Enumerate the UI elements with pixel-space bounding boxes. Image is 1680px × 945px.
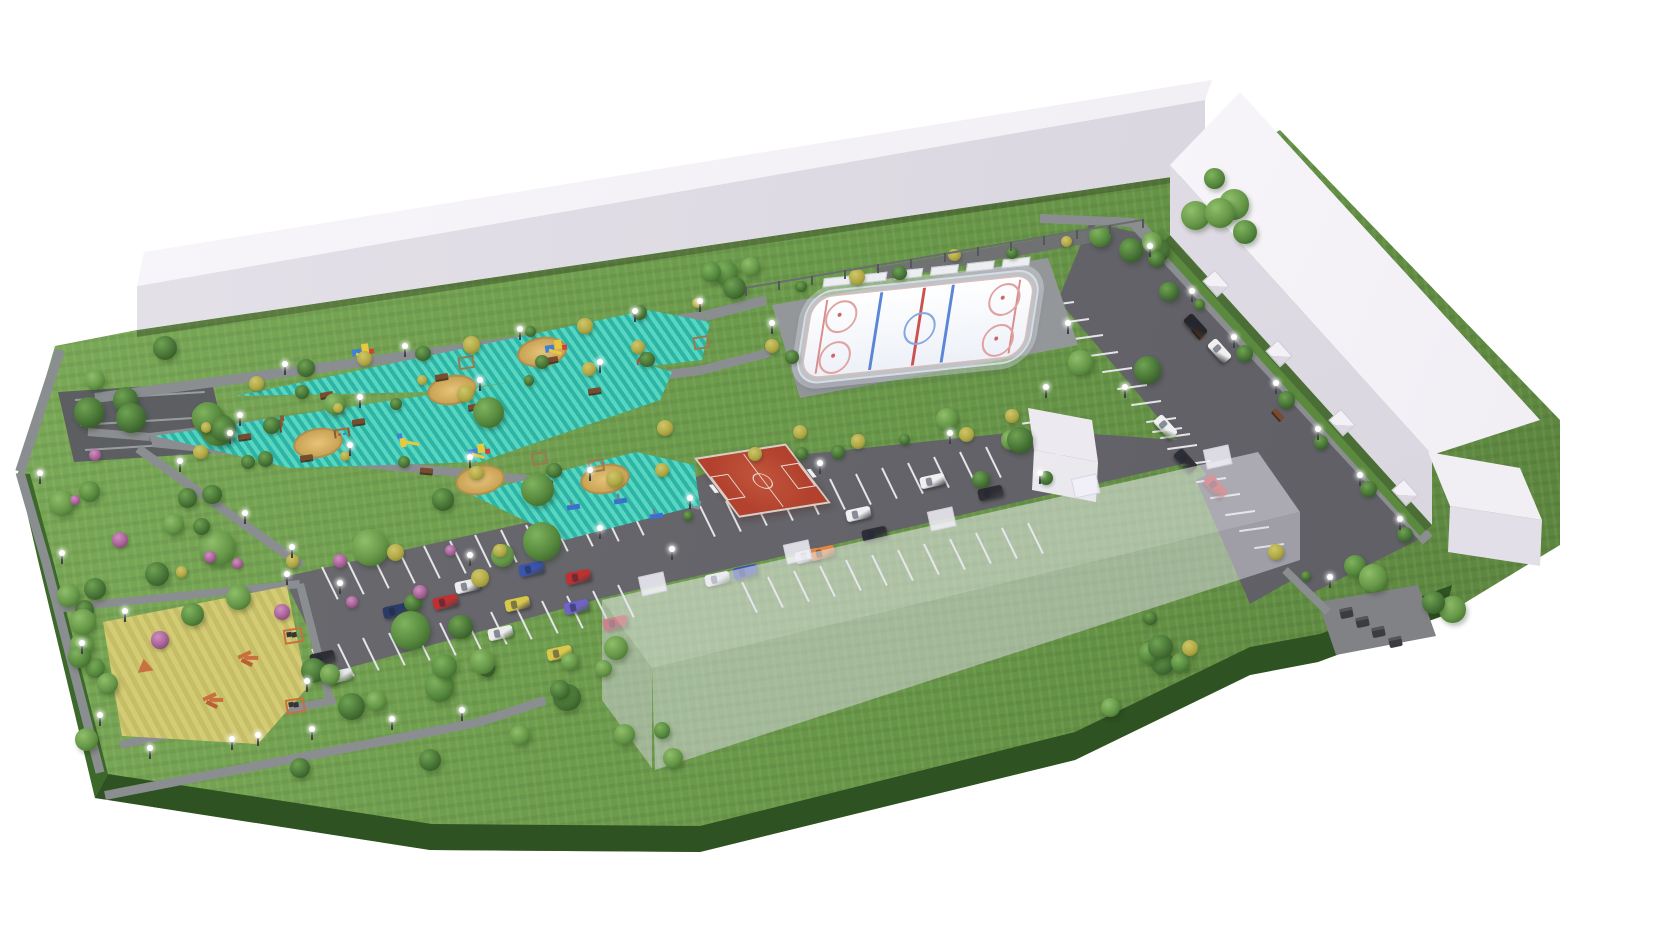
lamp-pole: [81, 644, 83, 654]
tree: [404, 594, 422, 612]
car-windshield: [524, 565, 532, 574]
rink-blue-line: [940, 285, 955, 363]
tree: [290, 758, 310, 778]
vegetation-layer: [0, 0, 1680, 945]
bush: [398, 456, 410, 468]
lamp-head: [632, 308, 638, 314]
park-bench: [238, 433, 252, 440]
equip-part: [457, 355, 475, 370]
tree: [75, 600, 94, 619]
tree: [201, 413, 234, 446]
tree: [70, 609, 96, 635]
parking-stall-line: [1272, 254, 1285, 278]
equip-part: [286, 632, 292, 638]
sandbox: [578, 460, 632, 498]
tree: [352, 529, 389, 566]
bush: [249, 376, 265, 392]
path-segment: [152, 438, 661, 497]
lamp-head: [289, 544, 295, 550]
path-segment: [88, 428, 151, 441]
parking-stall-line: [923, 544, 940, 575]
lamp-head: [1231, 334, 1237, 340]
bush: [258, 451, 274, 467]
planned-entrance-cube: [1071, 474, 1101, 499]
east-small-building-roof: [0, 0, 1680, 945]
lamp-pole: [99, 716, 101, 726]
planned-building-roof: [0, 0, 1680, 945]
tree: [57, 584, 80, 607]
parked-car: [1173, 448, 1199, 475]
park-bench: [300, 454, 314, 461]
bush: [849, 269, 865, 285]
tree: [1181, 201, 1210, 230]
equip-part: [136, 657, 154, 672]
parking-stall-line: [576, 514, 594, 547]
street-lamp: [357, 394, 363, 408]
parking-stall-line: [1251, 245, 1264, 269]
tree: [320, 664, 341, 685]
parking-stall-line: [1001, 528, 1018, 559]
bush: [1143, 611, 1157, 625]
park-bench: [1272, 408, 1284, 421]
fence-post: [1043, 236, 1045, 245]
car-windshield: [315, 654, 323, 663]
fence-post: [944, 253, 946, 262]
parking-stall-line: [741, 582, 758, 613]
lamp-pole: [1275, 384, 1277, 394]
equip-part: [472, 453, 485, 459]
lamp-head: [1065, 320, 1071, 326]
fence-post: [844, 270, 846, 279]
street-lamp: [237, 412, 243, 426]
tree: [113, 387, 139, 413]
lamp-head: [1147, 243, 1153, 249]
park-bench: [435, 373, 449, 380]
street-lamp: [769, 320, 775, 334]
street-lamp: [517, 326, 523, 340]
street-lamp: [687, 495, 693, 509]
tree: [553, 684, 581, 712]
parking-stall-line: [388, 633, 406, 666]
bush: [1148, 251, 1164, 267]
lamp-head: [1037, 470, 1043, 476]
parking-stall-line: [803, 484, 820, 515]
parking-stall-line: [1073, 334, 1103, 340]
play-structure-multi: [351, 340, 378, 362]
lamp-pole: [339, 584, 341, 594]
tree: [1001, 430, 1021, 450]
bush: [493, 544, 507, 558]
lamp-pole: [699, 302, 701, 312]
parking-stall-line: [767, 576, 784, 607]
tree: [192, 405, 214, 427]
sandbox: [291, 424, 345, 462]
parking-stall-line: [949, 538, 966, 569]
equip-part: [241, 658, 254, 667]
parking-stall-line: [897, 549, 914, 580]
equip-part: [477, 443, 485, 453]
court-key-left: [710, 474, 745, 500]
bush: [748, 447, 762, 461]
equip-part: [570, 500, 573, 506]
parked-car: [919, 473, 946, 490]
parking-stall-line: [1152, 427, 1182, 433]
tree: [1134, 356, 1162, 384]
lamp-pole: [61, 554, 63, 564]
parking-stall-line: [500, 529, 518, 562]
parking-stall-line: [725, 500, 742, 531]
car-windshield: [815, 549, 823, 558]
pad-marking: [80, 416, 210, 426]
equip-part: [399, 438, 406, 448]
planned-entrance-cube: [927, 506, 957, 531]
bush: [417, 375, 427, 385]
tree: [425, 672, 454, 701]
lamp-head: [304, 678, 310, 684]
street-lamp: [79, 640, 85, 654]
circulation-layer: [0, 0, 1680, 945]
tree: [713, 260, 738, 285]
tree: [550, 680, 570, 700]
lamp-pole: [469, 458, 471, 468]
lamp-head: [284, 571, 290, 577]
lamp-pole: [39, 474, 41, 484]
basketball-hoop: [709, 484, 719, 493]
car-windshield: [983, 489, 991, 498]
bush: [683, 511, 693, 521]
lamp-pole: [689, 499, 691, 509]
planned-building-side: [0, 0, 1680, 945]
parked-car: [382, 603, 409, 620]
wooden-deer-sculpture: [269, 415, 287, 435]
street-lamp: [147, 745, 153, 759]
car-windshield: [710, 575, 718, 584]
equip-part: [347, 428, 350, 436]
bush: [333, 403, 343, 413]
pad-marking: [75, 391, 205, 401]
bush: [415, 346, 431, 362]
rink-faceoff-dot: [837, 313, 842, 318]
street-lamp: [284, 571, 290, 585]
street-lamp: [1122, 384, 1128, 398]
equip-part: [545, 345, 555, 353]
parked-car: [565, 569, 592, 586]
court-key-right: [780, 463, 815, 489]
street-lamp: [337, 580, 343, 594]
flower-bush: [204, 551, 215, 562]
lamp-head: [1273, 380, 1279, 386]
lamp-head: [459, 707, 465, 713]
ice-hockey-rink: [793, 267, 1043, 386]
parking-stall-line: [1022, 419, 1048, 425]
equip-part: [244, 656, 258, 660]
entrance-cube: [1391, 479, 1418, 507]
play-structure-frame: [689, 330, 716, 352]
equip-part: [338, 433, 341, 435]
street-lamp: [459, 707, 465, 721]
flower-bush: [89, 449, 102, 462]
site-plan-render: [0, 0, 1680, 945]
bush: [639, 352, 655, 368]
planned-entrance-cube: [783, 539, 813, 564]
parking-stall-line: [1117, 384, 1147, 390]
lamp-head: [687, 495, 693, 501]
parking-stall-line: [1088, 351, 1118, 357]
equip-part: [530, 451, 548, 466]
bush: [241, 455, 255, 469]
park-bench: [320, 391, 334, 398]
lamp-head: [389, 716, 395, 722]
basketball-hoop: [807, 469, 817, 478]
car-windshield: [800, 552, 808, 561]
parking-stall-line: [1225, 510, 1255, 516]
car-windshield: [438, 598, 446, 607]
bush: [1301, 571, 1311, 581]
park-bench: [468, 403, 482, 410]
bush: [851, 434, 865, 448]
equip-part: [567, 504, 581, 511]
lamp-pole: [461, 711, 463, 721]
tree: [181, 603, 204, 626]
playground-middle: [0, 0, 1680, 945]
lamp-head: [59, 550, 65, 556]
parked-car: [518, 561, 545, 578]
rink-goal-line: [815, 300, 828, 374]
bush: [606, 470, 622, 486]
parked-car: [602, 615, 629, 632]
street-lamp: [282, 361, 288, 375]
park-bench: [545, 356, 559, 363]
street-lamp: [597, 359, 603, 373]
path-segment: [477, 696, 547, 727]
lamp-pole: [391, 720, 393, 730]
parking-stall-line: [1239, 526, 1269, 532]
street-lamp: [477, 377, 483, 391]
parking-stall-line: [1209, 227, 1222, 251]
equip-part: [549, 349, 562, 355]
car-windshield: [332, 672, 340, 681]
lamp-pole: [124, 612, 126, 622]
lamp-head: [597, 359, 603, 365]
lamp-head: [697, 298, 703, 304]
lamp-head: [769, 320, 775, 326]
street-lamp: [632, 308, 638, 322]
dumpster-bin: [1388, 636, 1403, 648]
lamp-head: [1122, 384, 1128, 390]
dog-obstacle-logs: [237, 646, 264, 668]
lamp-head: [1315, 426, 1321, 432]
parking-stall-line: [1146, 417, 1176, 423]
parking-stall-line: [1044, 301, 1074, 307]
street-lamp: [255, 732, 261, 746]
tree: [701, 262, 721, 282]
equip-part: [352, 349, 362, 357]
tree: [366, 691, 386, 711]
bush: [959, 427, 974, 442]
lamp-head: [517, 326, 523, 332]
bush: [297, 359, 315, 377]
path-segment: [1040, 214, 1135, 227]
flower-bush: [112, 532, 128, 548]
bush: [631, 340, 645, 354]
bush: [793, 425, 808, 440]
bush: [1039, 471, 1054, 486]
parking-stall-line: [1131, 400, 1161, 406]
lamp-head: [467, 552, 473, 558]
tree: [178, 488, 198, 508]
lamp-head: [1189, 288, 1195, 294]
street-lamp: [97, 712, 103, 726]
parking-stall-line: [1027, 522, 1044, 553]
lamp-pole: [1317, 430, 1319, 440]
rink-center-circle: [901, 311, 938, 347]
lamp-pole: [311, 730, 313, 740]
street-lamp: [242, 510, 248, 524]
lamp-pole: [771, 324, 773, 334]
parking-stall-line: [819, 565, 836, 596]
bush: [463, 336, 480, 353]
rink-bench: [966, 260, 995, 272]
lamp-pole: [229, 434, 231, 444]
parking-stall-line: [602, 508, 620, 541]
street-lamp: [1231, 334, 1237, 348]
park-bench: [1192, 326, 1204, 339]
play-structure-frame: [454, 350, 481, 372]
path-segment: [149, 366, 700, 442]
street-lamp: [347, 442, 353, 456]
rink-bench: [858, 272, 887, 284]
car-windshield: [1208, 479, 1218, 489]
tree: [521, 473, 555, 507]
equip-part: [285, 697, 306, 715]
parked-car: [1153, 414, 1179, 441]
parking-stall-line: [1064, 467, 1090, 473]
flower-bush: [333, 554, 347, 568]
bush: [201, 422, 212, 433]
street-lamp: [467, 454, 473, 468]
bush: [471, 569, 488, 586]
flower-bush: [70, 495, 80, 505]
deer-leg: [271, 427, 274, 434]
lamp-pole: [469, 556, 471, 566]
tree: [1007, 427, 1032, 452]
dumpster-pad: [0, 0, 1680, 945]
dog-training-area: [0, 0, 1680, 945]
lamp-pole: [589, 471, 591, 481]
planned-building-front: [0, 0, 1680, 945]
parking-stall-line: [793, 571, 810, 602]
tree: [432, 654, 458, 680]
dumpster-bin: [1371, 626, 1386, 638]
lamp-pole: [149, 749, 151, 759]
lamp-head: [587, 467, 593, 473]
parking-stall-line: [1181, 460, 1211, 466]
rink-faceoff-circle: [979, 322, 1016, 358]
car-windshield: [460, 582, 468, 591]
equip-part: [562, 344, 568, 350]
tree: [74, 397, 104, 427]
rink-bench: [930, 264, 959, 276]
parking-stall-line: [845, 560, 862, 591]
rink-faceoff-circle: [986, 281, 1023, 317]
equip-part: [333, 430, 336, 438]
tree: [163, 514, 184, 535]
equip-part: [293, 702, 299, 708]
path-segment: [42, 561, 105, 773]
parking-stall-line: [321, 567, 339, 600]
bush: [546, 463, 561, 478]
fence-post: [977, 247, 979, 256]
planned-entrance-cube: [1202, 444, 1232, 469]
fence-post: [1109, 225, 1111, 234]
parking-stall-line: [829, 479, 846, 510]
tree: [1139, 642, 1161, 664]
lamp-head: [227, 430, 233, 436]
parking-stall-line: [474, 535, 492, 568]
bush: [795, 447, 808, 460]
lamp-head: [237, 412, 243, 418]
north-apartment-building-front: [0, 0, 1680, 945]
bush: [1194, 299, 1205, 310]
tree: [324, 393, 346, 415]
equip-part: [587, 458, 605, 473]
lamp-pole: [306, 682, 308, 692]
lamp-pole: [949, 434, 951, 444]
street-lamp: [177, 458, 183, 472]
dumpster-bin: [1355, 616, 1370, 628]
tree: [79, 481, 100, 502]
entrance-cube: [1202, 270, 1229, 298]
fence-post: [877, 264, 879, 273]
parking-stall-line: [439, 622, 457, 655]
street-lamp: [289, 544, 295, 558]
lamp-head: [282, 361, 288, 367]
recreation-layer: [0, 0, 1680, 945]
parked-car: [732, 564, 759, 581]
utility-kiosk-front: [0, 0, 1680, 945]
street-lamp: [304, 678, 310, 692]
equip-part: [237, 650, 251, 659]
tree: [1148, 635, 1172, 659]
dumpster-bin-lid: [1355, 616, 1368, 622]
equip-part: [468, 449, 478, 457]
play-structure-multi: [467, 440, 494, 462]
tree: [595, 660, 612, 677]
tree: [473, 397, 504, 428]
equip-part: [209, 698, 223, 702]
car-windshield: [493, 629, 501, 638]
north-building-shadow: [0, 0, 1680, 945]
bush: [948, 249, 961, 262]
bush: [1314, 435, 1328, 449]
equip-part: [288, 702, 294, 708]
tree: [85, 658, 105, 678]
path-segment: [104, 718, 479, 800]
street-lamp: [1065, 320, 1071, 334]
north-apartment-building-roof: [0, 0, 1680, 945]
equip-part: [617, 494, 620, 500]
parking-stall-line: [959, 452, 976, 483]
tree: [301, 658, 326, 683]
vehicles-layer: [0, 0, 1680, 945]
parking-stall-line: [1160, 433, 1190, 439]
tree: [1422, 591, 1445, 614]
sandbox: [425, 371, 479, 409]
lamp-pole: [1067, 324, 1069, 334]
lamp-head: [1043, 384, 1049, 390]
parking-stall-line: [881, 468, 898, 499]
lamp-pole: [599, 529, 601, 539]
